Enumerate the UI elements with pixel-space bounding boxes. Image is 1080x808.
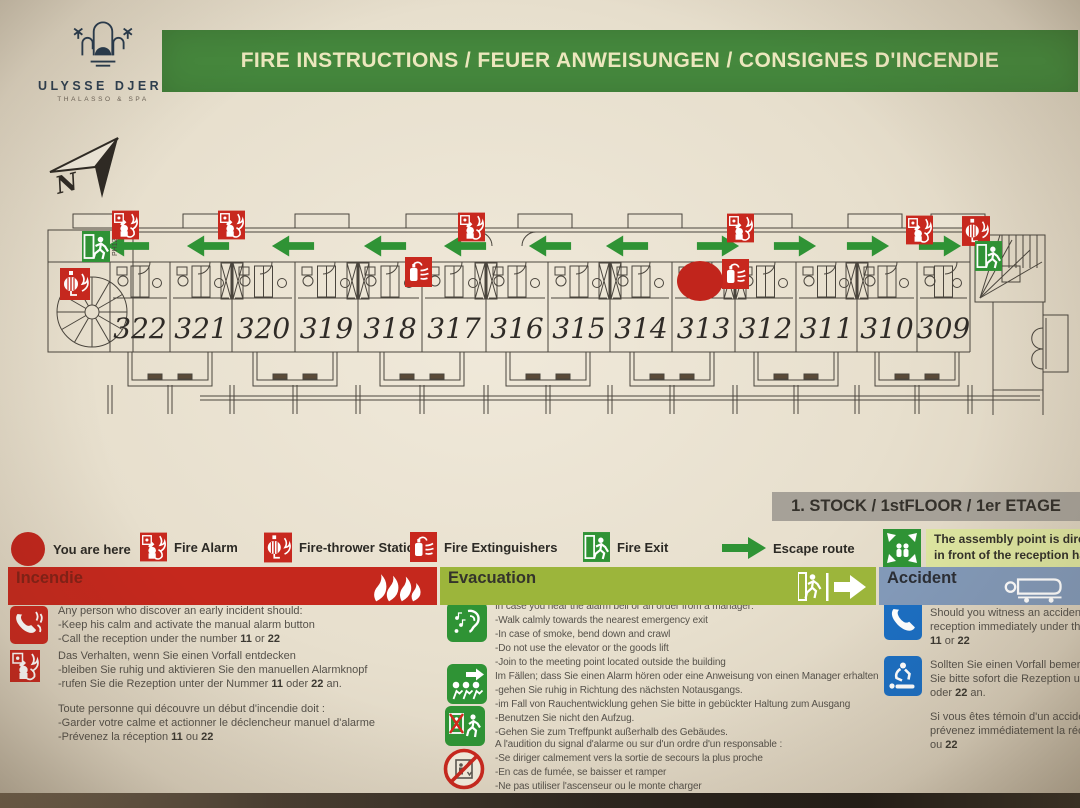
hotel-tagline: THALASSO & SPA <box>38 96 168 103</box>
room-number: 321 <box>174 312 227 345</box>
legend-escape-route: Escape route <box>722 536 855 560</box>
evacuation-instructions: In case you hear the alarm bell or an or… <box>495 600 754 670</box>
instruction-line: -In case of smoke, bend down and crawl <box>495 628 754 642</box>
fire-exit-icon <box>975 241 1002 271</box>
evacuate-direction-icon <box>447 664 487 704</box>
fire-exit-icon <box>82 231 110 262</box>
fire-alarm-icon <box>112 211 139 240</box>
instruction-line: -Keep his calm and activate the manual a… <box>58 618 315 632</box>
instruction-line: -Call the reception under the number 11 … <box>58 632 315 646</box>
escape-route-arrow <box>272 235 314 256</box>
room-number: 320 <box>237 312 290 345</box>
accident-instructions: Si vous êtes témoin d'un accident,préven… <box>930 710 1080 752</box>
instruction-line: Any person who discover an early inciden… <box>58 604 315 618</box>
stair-label: PH12 <box>112 238 119 256</box>
hotel-logo: ULYSSE DJERBA THALASSO & SPA <box>38 14 168 103</box>
instruction-line: Das Verhalten, wenn Sie einen Vorfall en… <box>58 649 367 663</box>
instruction-line: -Do not use the elevator or the goods li… <box>495 642 754 656</box>
room-number: 315 <box>552 312 605 345</box>
fire-alarm-icon <box>906 216 933 245</box>
photo-bottom-edge <box>0 793 1080 808</box>
fire-thrower-station-icon <box>60 268 90 300</box>
room-number: 310 <box>860 312 913 345</box>
section-incendie-header: Incendie <box>8 567 437 605</box>
fire-alarm-icon <box>727 214 754 243</box>
instruction-line: -Prévenez la réception 11 ou 22 <box>58 730 375 744</box>
page-title: FIRE INSTRUCTIONS / FEUER ANWEISUNGEN / … <box>241 49 1000 73</box>
escape-route-icon <box>722 536 766 560</box>
room-number: 309 <box>917 312 970 345</box>
flames-icon <box>365 571 429 603</box>
instruction-line: oder 22 an. <box>930 686 1080 700</box>
incendie-instructions: Das Verhalten, wenn Sie einen Vorfall en… <box>58 649 367 691</box>
legend-assembly-point <box>883 529 921 567</box>
room-number: 319 <box>300 312 353 345</box>
fire-alarm-icon <box>218 211 245 240</box>
fire-thrower-station-icon <box>264 532 292 563</box>
instruction-line: A l'audition du signal d'alarme ou sur d… <box>495 738 788 752</box>
room-number: 317 <box>427 312 481 345</box>
room-number: 313 <box>677 312 730 345</box>
room-number: 311 <box>800 312 853 345</box>
section-accident-header: Accident <box>879 567 1080 605</box>
instruction-line: -Walk calmly towards the nearest emergen… <box>495 614 754 628</box>
no-elevator-prohibited-icon <box>443 748 485 790</box>
floor-label: 1. STOCK / 1stFLOOR / 1er ETAGE <box>772 492 1080 521</box>
you-are-here-marker <box>10 531 46 567</box>
legend-fire-extinguishers: Fire Extinguishers <box>410 532 557 562</box>
legend-fire-alarm: Fire Alarm <box>140 532 238 562</box>
section-incendie-title: Incendie <box>8 567 83 588</box>
assembly-point-note: The assembly point is directly in front … <box>926 529 1080 569</box>
instruction-line: -bleiben Sie ruhig und aktivieren Sie de… <box>58 663 367 677</box>
hotel-logo-icon <box>70 14 136 72</box>
north-arrow: N <box>50 138 118 200</box>
floor-plan: N <box>0 120 1080 480</box>
assembly-point-icon <box>883 529 921 567</box>
incendie-instructions: Toute personne qui découvre un début d'i… <box>58 702 375 744</box>
escape-route-arrow <box>847 235 889 256</box>
north-label: N <box>51 166 81 200</box>
instruction-line: -Ne pas utiliser l'ascenseur ou le monte… <box>495 780 788 794</box>
section-evacuation-title: Evacuation <box>440 567 536 588</box>
alarm-button-icon <box>10 650 40 682</box>
instruction-line: Sollten Sie einen Vorfall bemerken; rufe… <box>930 658 1080 672</box>
accident-instructions: Sollten Sie einen Vorfall bemerken; rufe… <box>930 658 1080 700</box>
room-number: 318 <box>363 312 416 345</box>
room-number: 322 <box>113 312 166 345</box>
legend-fire-exit: Fire Exit <box>583 532 668 562</box>
fire-alarm-icon <box>140 532 167 562</box>
hotel-name: ULYSSE DJERBA <box>38 79 168 93</box>
escape-route-arrow <box>529 235 571 256</box>
instruction-line: -rufen Sie die Rezeption unter der Numme… <box>58 677 367 691</box>
instruction-line: -Se diriger calmement vers la sortie de … <box>495 752 788 766</box>
instruction-line: -gehen Sie ruhig in Richtung des nächste… <box>495 684 879 698</box>
section-evacuation-header: Evacuation <box>440 567 876 605</box>
room-number: 312 <box>739 312 792 345</box>
escape-route-arrow <box>364 235 406 256</box>
fire-exit-icon <box>583 532 610 562</box>
instruction-line: Im Fällen; dass Sie einen Alarm hören od… <box>495 670 879 684</box>
room-number: 314 <box>614 312 667 345</box>
instruction-line: Should you witness an accident, call the <box>930 606 1080 620</box>
instruction-line: -im Fall von Rauchentwicklung gehen Sie … <box>495 698 879 712</box>
ear-alarm-icon <box>447 602 487 642</box>
evacuation-instructions: Im Fällen; dass Sie einen Alarm hören od… <box>495 670 879 740</box>
accident-instructions: Should you witness an accident, call the… <box>930 606 1080 648</box>
instruction-line: ou 22 <box>930 738 1080 752</box>
escape-route-arrow <box>606 235 648 256</box>
section-accident-title: Accident <box>879 567 957 588</box>
incendie-instructions: Any person who discover an early inciden… <box>58 604 315 646</box>
instruction-line: Toute personne qui découvre un début d'i… <box>58 702 375 716</box>
instruction-line: -Garder votre calme et actionner le décl… <box>58 716 375 730</box>
instruction-line: -Benutzen Sie nicht den Aufzug. <box>495 712 879 726</box>
legend-you-are-here: You are here <box>10 531 131 567</box>
instruction-line: prévenez immédiatement la réception 11 <box>930 724 1080 738</box>
title-banner: FIRE INSTRUCTIONS / FEUER ANWEISUNGEN / … <box>162 30 1078 92</box>
instruction-line: -En cas de fumée, se baisser et ramper <box>495 766 788 780</box>
instruction-line: Sie bitte sofort die Rezeption unter 11 <box>930 672 1080 686</box>
fire-extinguisher-icon <box>722 259 749 289</box>
fire-instructions-sign: ULYSSE DJERBA THALASSO & SPA FIRE INSTRU… <box>0 0 1080 808</box>
fire-extinguisher-icon <box>405 257 432 287</box>
fire-extinguishers-icon <box>410 532 437 562</box>
instruction-line: reception immediately under the number <box>930 620 1080 634</box>
stretcher-icon <box>999 571 1073 605</box>
you-are-here-marker <box>677 261 723 301</box>
phone-fire-icon <box>10 606 48 644</box>
exit-run-arrow-icon <box>798 571 868 603</box>
instruction-line: -Join to the meeting point located outsi… <box>495 656 754 670</box>
instruction-line: Si vous êtes témoin d'un accident, <box>930 710 1080 724</box>
phone-call-icon <box>884 600 922 640</box>
fire-alarm-icon <box>458 213 485 242</box>
first-aid-accident-icon <box>884 656 922 696</box>
no-elevator-walk-icon <box>445 706 485 746</box>
escape-route-arrow <box>774 235 816 256</box>
room-number: 316 <box>490 312 543 345</box>
legend-fire-thrower-station: Fire-thrower Station <box>264 532 423 563</box>
instruction-line: 11 or 22 <box>930 634 1080 648</box>
